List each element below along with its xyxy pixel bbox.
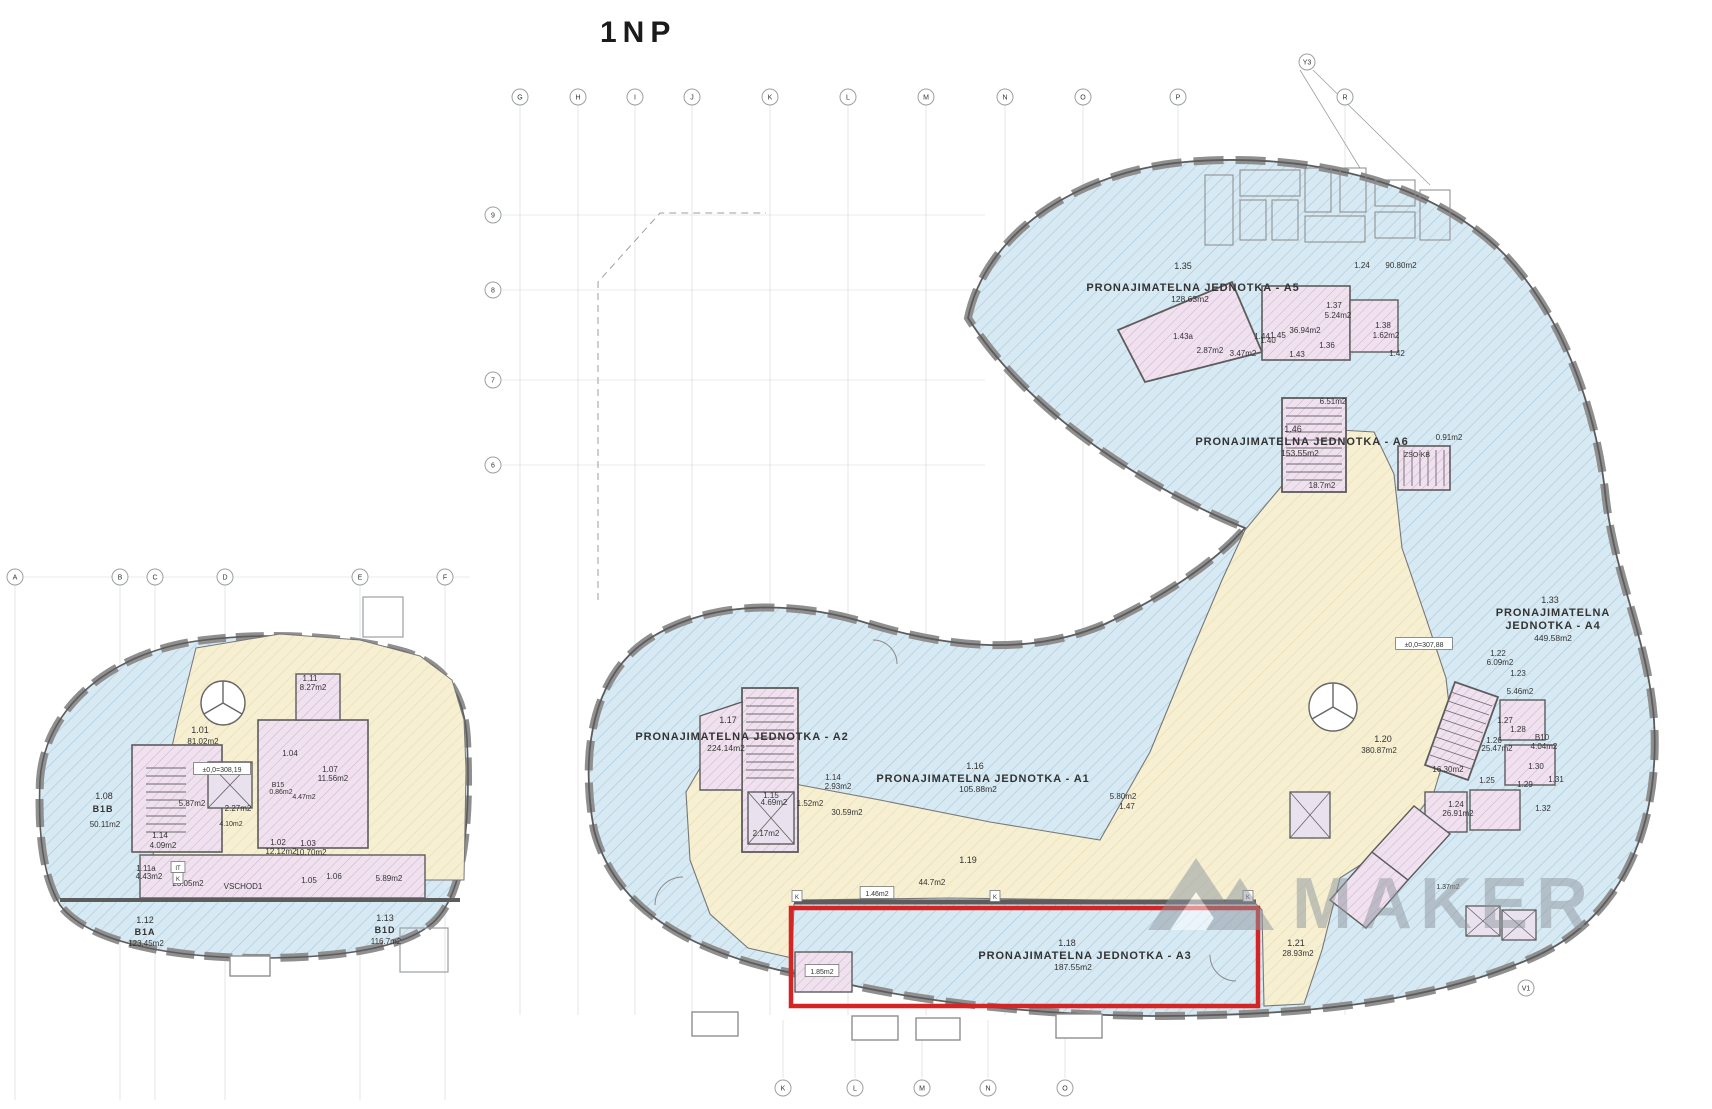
area-label: 449.58m2 <box>1534 633 1572 643</box>
unit-a5-label: PRONAJIMATELNA JEDNOTKA - A5 <box>1086 282 1299 294</box>
room-number-label: 1.14 <box>825 773 841 782</box>
svg-text:Y3: Y3 <box>1303 60 1312 67</box>
area-label: 4.69m2 <box>761 798 788 807</box>
area-label: 1.52m2 <box>797 799 824 808</box>
svg-text:L: L <box>846 95 850 102</box>
room-number-label: 1.17 <box>719 715 737 725</box>
area-label: 380.87m2 <box>1361 746 1397 755</box>
room-number-label: 1.35 <box>1174 261 1192 271</box>
room-number-label: 1.47 <box>1119 802 1135 811</box>
axis-bubble: J <box>684 89 700 105</box>
area-label: 12.12m2 <box>265 847 297 856</box>
room-number-label: 1.36 <box>1319 341 1335 350</box>
area-label: 11.56m2 <box>318 774 349 783</box>
axis-bubble: P <box>1170 89 1186 105</box>
room-number-label: B1B <box>93 804 114 814</box>
area-label: 30.59m2 <box>831 808 863 817</box>
room-number-label: IT <box>175 866 181 872</box>
svg-text:O: O <box>1080 95 1086 102</box>
area-label: 224.14m2 <box>707 743 745 753</box>
area-label: 4.43m2 <box>136 872 163 881</box>
room-number-label: 1.43a <box>1173 332 1194 341</box>
axis-bubble: G <box>512 89 528 105</box>
area-label: 4.09m2 <box>150 841 177 850</box>
area-label: 25.47m2 <box>1481 744 1513 753</box>
area-label: 26.91m2 <box>1442 809 1474 818</box>
area-label: 4.04m2 <box>1531 742 1558 751</box>
area-label: 5.46m2 <box>1507 687 1534 696</box>
room-number-label: 1.20 <box>1374 734 1392 744</box>
area-label: 16.30m2 <box>1432 765 1464 774</box>
room-number-label: B1A <box>135 927 156 937</box>
area-label: 123.45m2 <box>128 939 164 948</box>
axis-bubble: C <box>147 569 163 585</box>
area-label: 5.89m2 <box>376 874 403 883</box>
svg-text:A: A <box>13 575 18 582</box>
area-label: 50.11m2 <box>90 820 121 829</box>
axis-bubble: N <box>980 1080 996 1096</box>
room-number-label: 1.01 <box>191 725 209 735</box>
area-label: 81.02m2 <box>187 737 219 746</box>
svg-text:B: B <box>118 575 123 582</box>
room-number-label: 1.08 <box>95 791 113 801</box>
axis-bubble: V1 <box>1518 980 1534 996</box>
axis-bubble: K <box>762 89 778 105</box>
room-number-label: 1.24 <box>1448 800 1464 809</box>
area-label: 18.7m2 <box>1309 481 1336 490</box>
room-number-label: 1.12 <box>136 915 154 925</box>
room-number-label: 1.27 <box>1497 716 1513 725</box>
svg-text:N: N <box>985 1086 990 1093</box>
area-label: 90.80m2 <box>1385 261 1417 270</box>
room-number-label: ±0,0=307,88 <box>1404 642 1443 649</box>
room-number-label: 1.14 <box>152 831 168 840</box>
floor-plan-canvas: 1.35PRONAJIMATELNA JEDNOTKA - A5128.63m2… <box>0 0 1712 1109</box>
room-number-label: K <box>993 895 997 901</box>
axis-bubble: A <box>7 569 23 585</box>
b1-canopy <box>363 597 403 637</box>
area-label: 6.09m2 <box>1487 658 1514 667</box>
axis-bubble: M <box>918 89 934 105</box>
room-number-label: 1.05 <box>301 876 317 885</box>
svg-text:M: M <box>919 1086 925 1093</box>
area-label: 128.63m2 <box>1171 294 1209 304</box>
axis-bubble: M <box>914 1080 930 1096</box>
room-number-label: 1.28 <box>1510 725 1526 734</box>
room-number-label: 1.29 <box>1517 780 1533 789</box>
unit-a2-label: PRONAJIMATELNA JEDNOTKA - A2 <box>635 731 848 743</box>
area-label: 3.47m2 <box>1230 349 1257 358</box>
a-column <box>1309 683 1357 731</box>
unit-a4-label-2: JEDNOTKA - A4 <box>1505 620 1600 632</box>
area-label: 2.17m2 <box>753 829 780 838</box>
area-label: 10.70m2 <box>295 848 327 857</box>
axis-bubble: K <box>775 1080 791 1096</box>
svg-text:P: P <box>1176 95 1181 102</box>
room-number-label: 1.18 <box>1058 938 1076 948</box>
svg-text:V1: V1 <box>1522 986 1531 993</box>
area-label: 44.7m2 <box>919 878 946 887</box>
building-b1 <box>40 597 469 976</box>
area-label: 0.91m2 <box>1436 433 1463 442</box>
axis-bubble: O <box>1075 89 1091 105</box>
svg-text:J: J <box>690 95 694 102</box>
room-number-label: 1.38 <box>1375 321 1391 330</box>
svg-text:9: 9 <box>491 213 495 220</box>
area-label: 187.55m2 <box>1054 962 1092 972</box>
area-label: 6.51m2 <box>1320 397 1347 406</box>
room-number-label: 1.40 <box>1260 336 1276 345</box>
unit-a4-label: PRONAJIMATELNA <box>1496 607 1610 619</box>
room-number-label: 1.24 <box>1354 261 1370 270</box>
axis-bubble: I <box>627 89 643 105</box>
room-number-label: B1D <box>375 925 396 935</box>
room-number-label: 1.02 <box>270 838 286 847</box>
area-label: 5.24m2 <box>1325 311 1352 320</box>
b1-exit-bump <box>230 956 270 976</box>
area-label: 1.46m2 <box>865 891 888 898</box>
axis-bubble: Y3 <box>1299 54 1315 70</box>
room-number-label: 1.04 <box>282 749 298 758</box>
room-number-label: K <box>795 895 799 901</box>
room-number-label: 1.16 <box>966 761 984 771</box>
axis-bubble: R <box>1337 89 1353 105</box>
svg-text:F: F <box>443 575 447 582</box>
area-label: 5.80m2 <box>1110 792 1137 801</box>
floor-plan-page: 1.35PRONAJIMATELNA JEDNOTKA - A5128.63m2… <box>0 0 1712 1109</box>
unit-a3-label: PRONAJIMATELNA JEDNOTKA - A3 <box>978 950 1191 962</box>
page-title: 1NP <box>600 16 676 49</box>
room-number-label: 1.42 <box>1389 349 1405 358</box>
room-number-label: 1.22 <box>1490 649 1506 658</box>
a-exit-bumps <box>692 1012 1102 1040</box>
area-label: 2.87m2 <box>1197 346 1224 355</box>
svg-text:6: 6 <box>491 463 495 470</box>
room-number-label: 1.43 <box>1289 350 1305 359</box>
svg-text:M: M <box>923 95 929 102</box>
room-number-label: 1.06 <box>326 872 342 881</box>
axis-bubble: L <box>847 1080 863 1096</box>
axis-bubble: H <box>570 89 586 105</box>
room-number-label: 1.03 <box>300 839 316 848</box>
svg-text:H: H <box>575 95 580 102</box>
axis-bubble: 8 <box>485 282 501 298</box>
svg-text:8: 8 <box>491 288 495 295</box>
area-label: 28.93m2 <box>1282 949 1314 958</box>
room-number-label: 1.30 <box>1528 762 1544 771</box>
area-label: 2.27m2 <box>225 804 252 813</box>
area-label: 0.86m2 <box>269 789 292 796</box>
area-label: 5.87m2 <box>179 799 206 808</box>
axis-bubble: B <box>112 569 128 585</box>
room-number-label: 1.33 <box>1541 595 1559 605</box>
svg-text:K: K <box>768 95 773 102</box>
svg-text:K: K <box>781 1086 786 1093</box>
axis-bubble: E <box>352 569 368 585</box>
room-number-label: 1.32 <box>1535 804 1551 813</box>
axis-bubble: O <box>1057 1080 1073 1096</box>
watermark-text: MAKER <box>1292 864 1596 944</box>
svg-text:N: N <box>1002 95 1007 102</box>
svg-text:G: G <box>517 95 522 102</box>
room-number-label: 1.25 <box>1479 776 1495 785</box>
axis-bubble: D <box>217 569 233 585</box>
svg-text:R: R <box>1342 95 1347 102</box>
svg-text:O: O <box>1062 1086 1068 1093</box>
room-number-label: VSCHOD1 <box>224 882 263 891</box>
b1-column <box>201 681 245 725</box>
svg-text:7: 7 <box>491 378 495 385</box>
room-number-label: 1.46 <box>1284 424 1302 434</box>
area-label: 8.27m2 <box>300 683 327 692</box>
svg-text:C: C <box>152 575 157 582</box>
room-number-label: ZSO-KB <box>1404 452 1430 459</box>
room-number-label: 1.07 <box>322 765 338 774</box>
area-label: 116.7m2 <box>371 937 402 946</box>
axis-bubble: 9 <box>485 207 501 223</box>
area-label: 1.62m2 <box>1373 331 1400 340</box>
area-label: 153.55m2 <box>1281 448 1319 458</box>
area-label: 1.85m2 <box>810 969 833 976</box>
room-number-label: 1.13 <box>376 913 394 923</box>
axis-bubble: L <box>840 89 856 105</box>
area-label: 4.47m2 <box>292 794 315 801</box>
axis-bubble: F <box>437 569 453 585</box>
room-number-label: B15 <box>272 782 285 789</box>
svg-text:D: D <box>222 575 227 582</box>
area-label: 4.10m2 <box>219 821 242 828</box>
room-number-label: B10 <box>1535 733 1550 742</box>
axis-bubble: 6 <box>485 457 501 473</box>
room-number-label: ±0,0=308,19 <box>202 767 241 774</box>
area-label: 105.88m2 <box>959 784 997 794</box>
room-number-label: 1.11 <box>303 674 319 683</box>
area-label: 2.93m2 <box>825 782 852 791</box>
room-number-label: 1.37 <box>1326 301 1342 310</box>
axis-bubble: N <box>997 89 1013 105</box>
svg-text:I: I <box>634 95 636 102</box>
area-label: 36.94m2 <box>1289 326 1321 335</box>
svg-text:L: L <box>853 1086 857 1093</box>
room-number-label: 1.19 <box>959 855 977 865</box>
axis-bubble: 7 <box>485 372 501 388</box>
unit-a6-label: PRONAJIMATELNA JEDNOTKA - A6 <box>1195 436 1408 448</box>
room-number-label: 1.31 <box>1548 775 1564 784</box>
room-number-label: 1.23 <box>1510 669 1526 678</box>
room-number-label: K <box>176 877 180 883</box>
svg-text:E: E <box>358 575 363 582</box>
